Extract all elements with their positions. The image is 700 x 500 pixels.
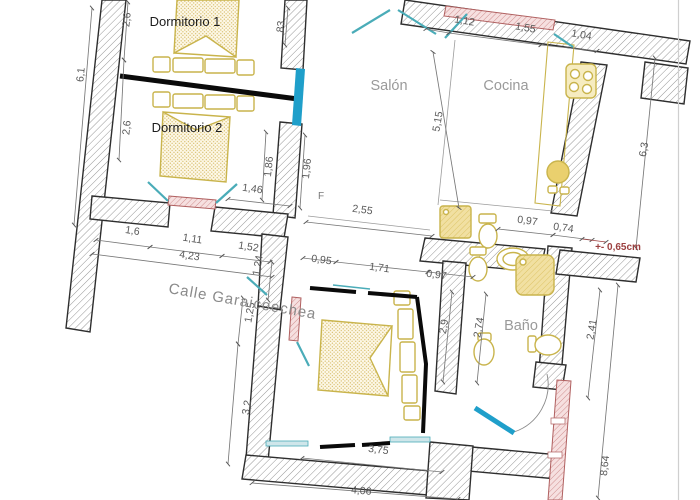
dimension-label: 0,97 — [425, 268, 447, 283]
toilet-bath-2-icon — [528, 335, 561, 355]
dimension-label: 83 — [274, 20, 287, 33]
dimension-label: 4,06 — [351, 484, 373, 498]
boundary-lines — [308, 40, 553, 230]
washing-machine-icon — [440, 206, 471, 238]
room-label-bano: Baño — [504, 318, 538, 334]
floor-plan-canvas: 2,66,12,6831,121,551,045,156,31,861,961,… — [0, 0, 700, 500]
shower-icon — [516, 255, 554, 295]
dimension-label: 5,15 — [430, 110, 445, 132]
dimension-label: 0,97 — [516, 214, 538, 229]
dimension-label: 1,6 — [124, 224, 140, 238]
window-facade — [168, 196, 216, 209]
stove-icon — [566, 64, 596, 98]
dimension-label: 2,55 — [351, 203, 373, 218]
dimension-label: 6,3 — [637, 141, 651, 158]
dimension-label: 3,2 — [240, 399, 254, 416]
glass-bottom-left — [266, 441, 308, 446]
dimension-label: 1,52 — [237, 240, 259, 255]
dimension-label: 1,46 — [241, 182, 263, 197]
dimension-label: 4,23 — [178, 249, 200, 264]
dimension-label: 1,96 — [300, 158, 314, 180]
toilet-laundry-icon — [479, 214, 497, 248]
dimension-label: 2,6 — [120, 12, 133, 28]
dimension-label: 0,95 — [310, 253, 332, 268]
wall-bedroom-right-upper — [281, 0, 307, 70]
dimension-label: 6,1 — [74, 67, 87, 83]
dimension-label: 1,11 — [182, 232, 203, 247]
annotation-label: +- 0,65cm — [595, 242, 641, 253]
dimension-label: 3,75 — [367, 443, 389, 457]
room-label-salon: Salón — [370, 78, 407, 94]
dimension-label: 2,41 — [584, 318, 599, 340]
annotation-label: F — [318, 191, 324, 202]
wall-topright-step — [641, 62, 688, 104]
swing-balcony-left — [352, 10, 390, 33]
floor-plan-svg: 2,66,12,6831,121,551,045,156,31,861,961,… — [0, 0, 700, 500]
dimension-label: 8,64 — [598, 455, 612, 477]
wall-left-exterior — [66, 0, 126, 332]
glass-bottom-right — [390, 437, 430, 442]
room-label-dormitorio-2: Dormitorio 2 — [152, 120, 223, 135]
wall-bedroom-right-lower — [273, 122, 302, 218]
double-bed-dormitorio-1-icon — [153, 0, 254, 75]
dimension-label: 0,74 — [552, 221, 574, 236]
double-bed-dormitorio-2-icon — [153, 92, 254, 182]
double-bed-bottom-bedroom-icon — [318, 291, 420, 420]
wall-bedroom3-left — [246, 306, 282, 462]
swing-facade-right — [216, 184, 237, 203]
window-bedroom3-top — [333, 285, 370, 289]
room-label-cocina: Cocina — [483, 78, 529, 94]
dimension-label: 1,86 — [262, 156, 276, 178]
window-bottom-right — [548, 380, 571, 500]
dimension-label: 2,9 — [437, 318, 451, 335]
dimension-label: 1,71 — [368, 261, 390, 276]
toilet-bath-icon — [469, 247, 487, 281]
swing-facade-left — [148, 182, 168, 201]
room-label-dormitorio-1: Dormitorio 1 — [150, 14, 221, 29]
swing-bedroom3 — [297, 342, 309, 366]
dimension-label: 2,6 — [120, 120, 133, 136]
